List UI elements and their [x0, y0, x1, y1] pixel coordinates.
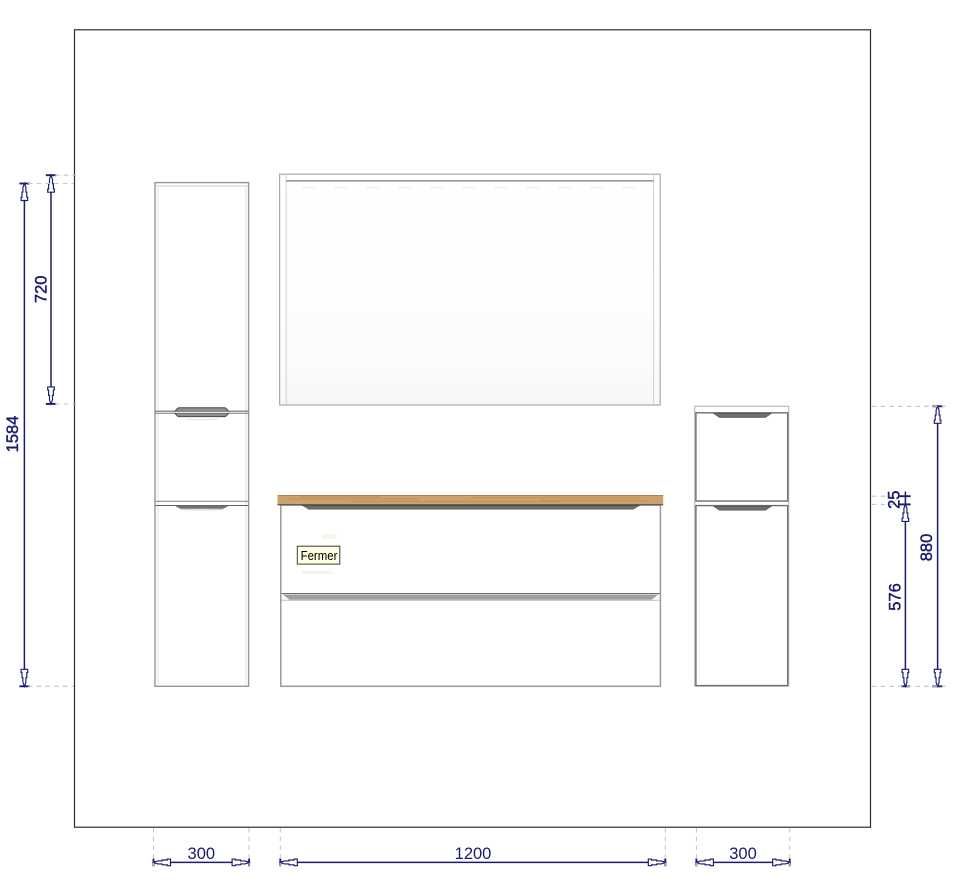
svg-text:880: 880: [918, 534, 936, 562]
svg-text:576: 576: [886, 583, 904, 611]
svg-text:300: 300: [188, 845, 216, 863]
svg-text:Fermer: Fermer: [301, 549, 338, 563]
svg-text:720: 720: [32, 276, 50, 304]
svg-text:300: 300: [729, 845, 757, 863]
svg-text:25: 25: [885, 491, 903, 509]
svg-text:1584: 1584: [4, 416, 22, 453]
svg-text:1200: 1200: [455, 845, 492, 863]
